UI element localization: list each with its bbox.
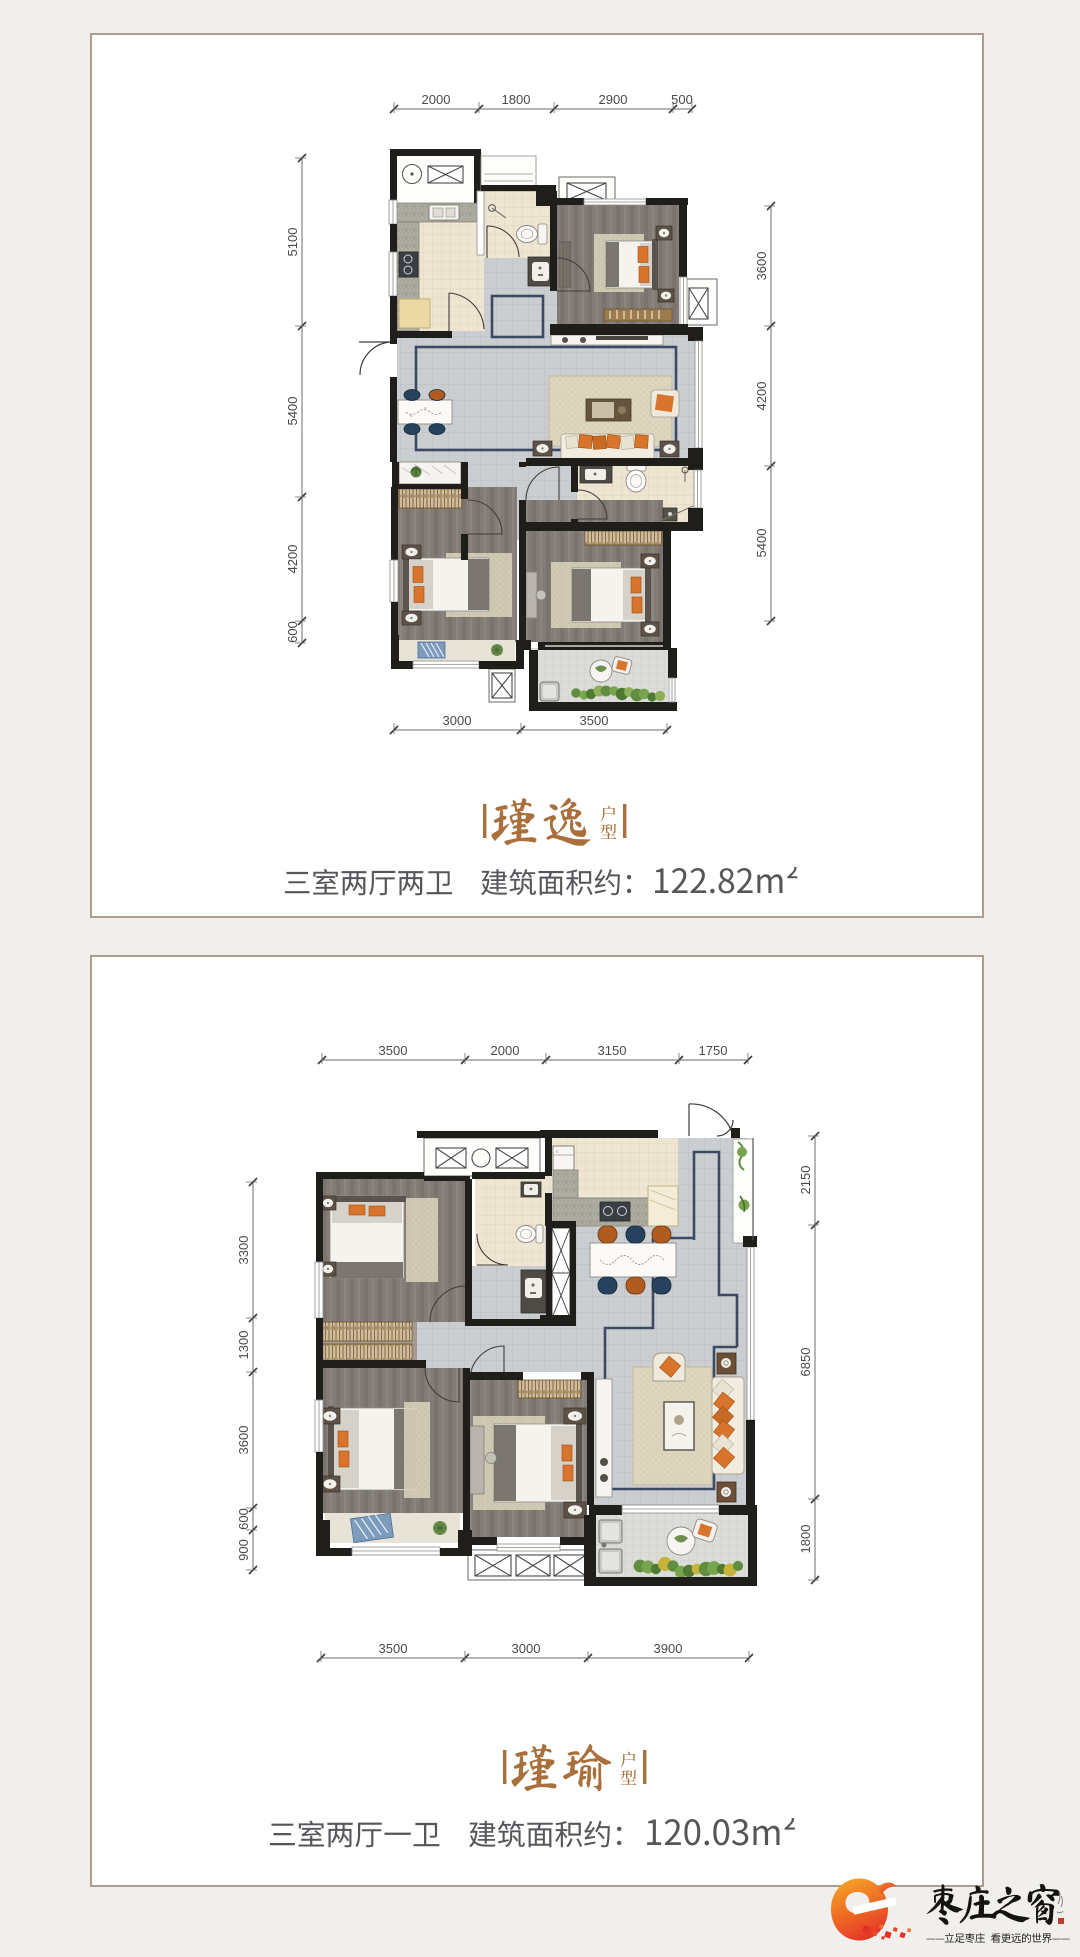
svg-text:1300: 1300: [236, 1331, 251, 1360]
svg-text:3000: 3000: [443, 713, 472, 728]
svg-text:6850: 6850: [798, 1348, 813, 1377]
svg-text:600: 600: [236, 1508, 251, 1530]
svg-text:5400: 5400: [754, 529, 769, 558]
svg-text:5100: 5100: [285, 228, 300, 257]
svg-text:3300: 3300: [236, 1236, 251, 1265]
svg-text:2000: 2000: [422, 92, 451, 107]
svg-text:1750: 1750: [699, 1043, 728, 1058]
svg-text:5400: 5400: [285, 397, 300, 426]
svg-text:2150: 2150: [798, 1166, 813, 1195]
svg-text:4200: 4200: [285, 545, 300, 574]
svg-text:3500: 3500: [379, 1043, 408, 1058]
svg-text:1800: 1800: [502, 92, 531, 107]
svg-text:1800: 1800: [798, 1525, 813, 1554]
svg-text:3150: 3150: [598, 1043, 627, 1058]
svg-text:600: 600: [285, 621, 300, 643]
svg-text:3900: 3900: [654, 1641, 683, 1656]
svg-text:3000: 3000: [512, 1641, 541, 1656]
svg-text:500: 500: [671, 92, 693, 107]
svg-text:3500: 3500: [580, 713, 609, 728]
svg-text:2000: 2000: [491, 1043, 520, 1058]
svg-text:3600: 3600: [236, 1426, 251, 1455]
svg-text:2900: 2900: [599, 92, 628, 107]
svg-text:4200: 4200: [754, 382, 769, 411]
svg-text:900: 900: [236, 1539, 251, 1561]
svg-text:3600: 3600: [754, 252, 769, 281]
svg-text:3500: 3500: [379, 1641, 408, 1656]
